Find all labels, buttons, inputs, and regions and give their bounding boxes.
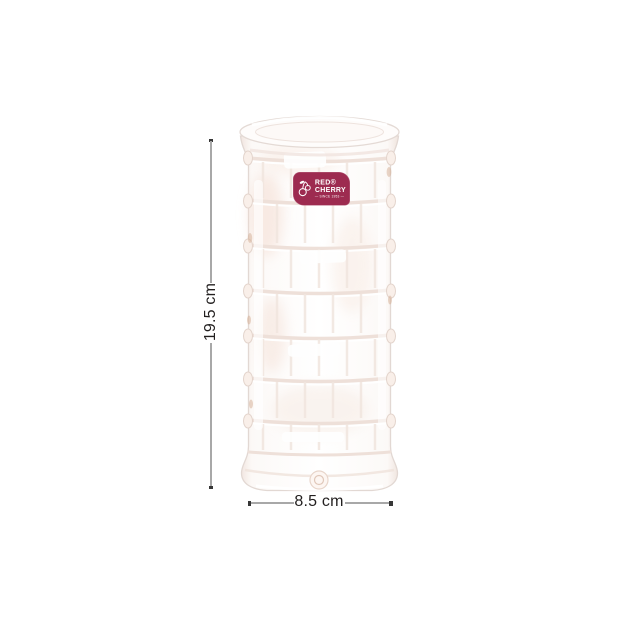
product-dimension-photo: RED® CHERRY — SINCE 1953 — 19.5 cm 8.5 c… xyxy=(0,0,625,625)
width-line-right xyxy=(345,502,389,504)
height-line-upper xyxy=(210,141,212,283)
width-value: 8.5 cm xyxy=(294,493,343,511)
width-right-cap xyxy=(389,501,393,506)
cherry-icon xyxy=(298,177,311,200)
glass-vase-illustration xyxy=(0,0,625,625)
brand-label: RED® CHERRY — SINCE 1953 — xyxy=(293,172,350,206)
brand-name-line2: CHERRY xyxy=(315,186,346,194)
height-value: 19.5 cm xyxy=(202,283,220,341)
brand-tagline: — SINCE 1953 — xyxy=(315,196,346,199)
width-line-left xyxy=(251,502,294,504)
height-bottom-cap xyxy=(209,486,214,490)
height-line-lower xyxy=(210,343,212,486)
